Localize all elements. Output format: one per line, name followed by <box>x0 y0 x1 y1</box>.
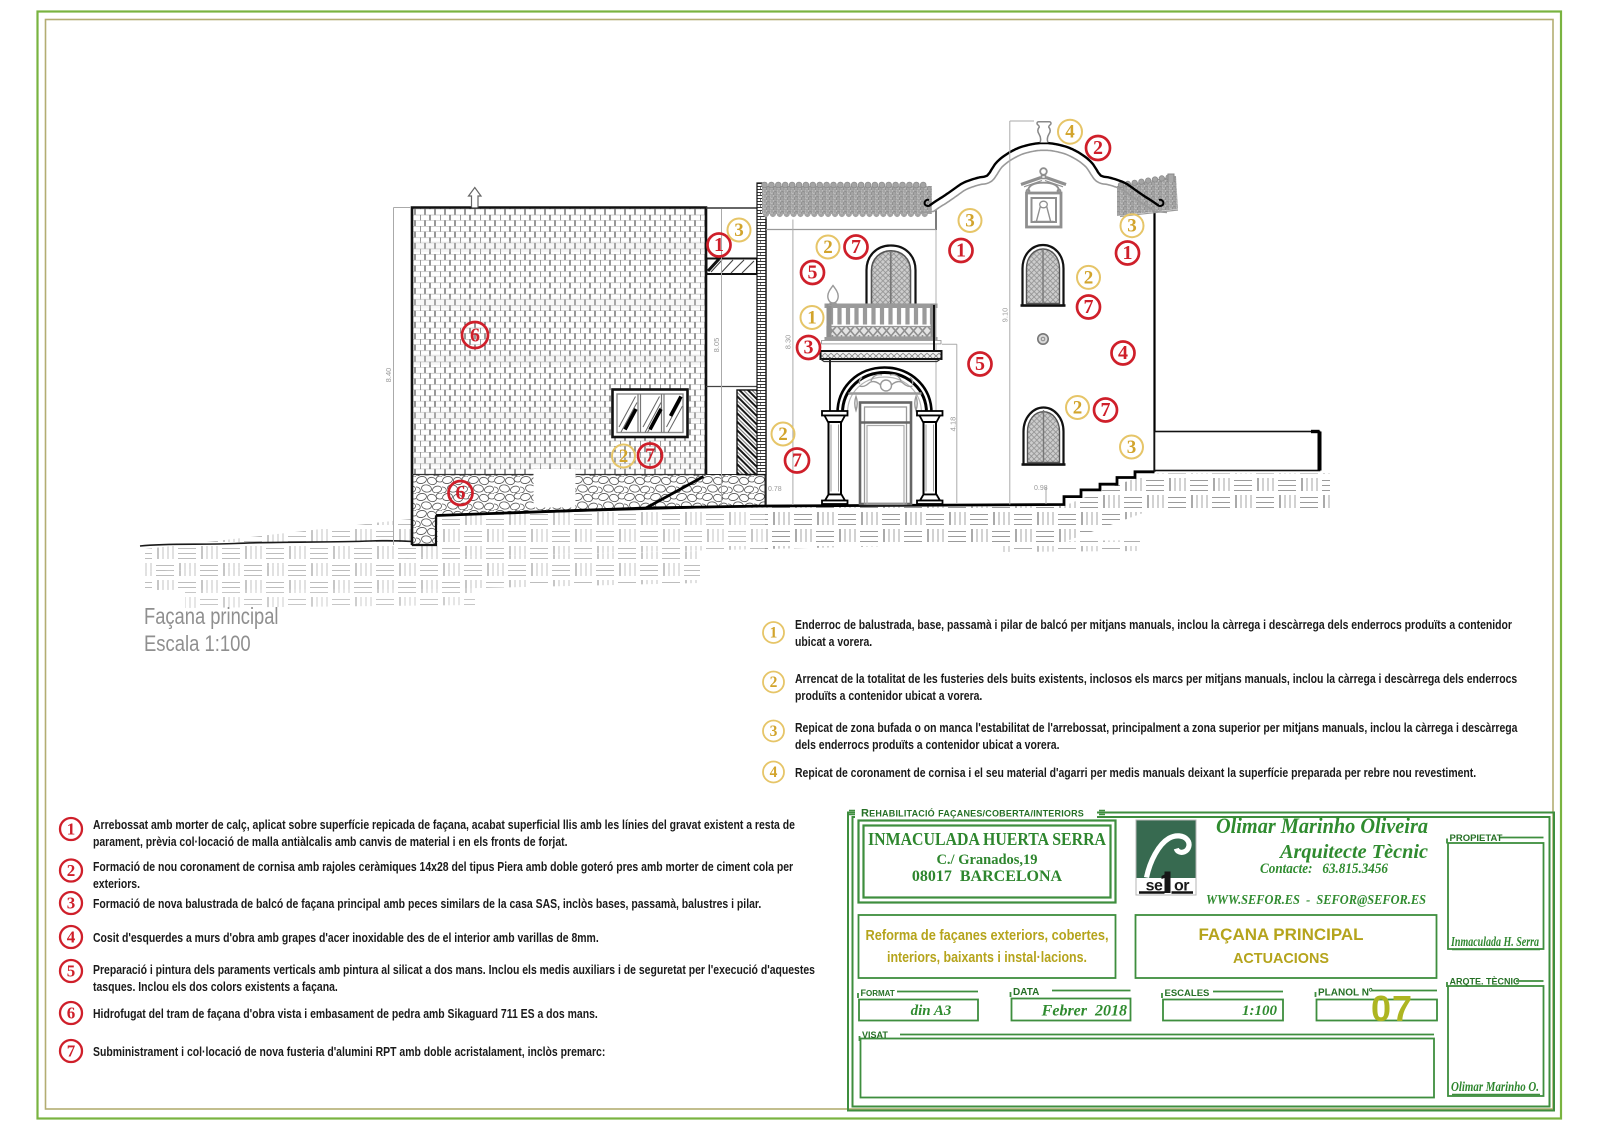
svg-text:WWW.SEFOR.ES - SEFOR@SEFOR.E: WWW.SEFOR.ES - SEFOR@SEFOR.ES <box>1206 892 1426 907</box>
svg-text:FORMAT: FORMAT <box>861 988 895 998</box>
svg-text:ESCALES: ESCALES <box>1165 988 1210 999</box>
svg-text:PROPIETAT: PROPIETAT <box>1450 833 1503 844</box>
svg-text:interiors, baixants i instal·l: interiors, baixants i instal·lacions. <box>887 950 1087 966</box>
svg-text:Reforma de façanes exteriors,: Reforma de façanes exteriors, cobertes, <box>866 928 1109 944</box>
svg-text:4.18: 4.18 <box>948 417 957 432</box>
svg-text:INMACULADA HUERTA SERRA: INMACULADA HUERTA SERRA <box>868 829 1106 849</box>
svg-text:1: 1 <box>714 234 724 256</box>
svg-text:ARQTE. TÈCNIC: ARQTE. TÈCNIC <box>1450 977 1521 987</box>
svg-text:3: 3 <box>734 220 744 241</box>
svg-text:DATA: DATA <box>1013 987 1039 998</box>
svg-text:4: 4 <box>1118 342 1128 364</box>
svg-text:5: 5 <box>808 262 818 284</box>
svg-text:2: 2 <box>823 237 833 258</box>
svg-text:08017 BARCELONA: 08017 BARCELONA <box>912 868 1063 885</box>
svg-text:5: 5 <box>67 962 76 981</box>
svg-text:0.98: 0.98 <box>1034 485 1048 492</box>
svg-text:3: 3 <box>67 894 76 913</box>
svg-text:3: 3 <box>965 211 975 232</box>
svg-text:VISAT: VISAT <box>862 1030 888 1040</box>
svg-text:8.30: 8.30 <box>783 335 792 350</box>
svg-text:2: 2 <box>1093 137 1103 159</box>
svg-text:C./ Granados,19: C./ Granados,19 <box>936 852 1037 868</box>
svg-text:5: 5 <box>975 353 985 375</box>
svg-text:7: 7 <box>1101 399 1111 421</box>
svg-text:2: 2 <box>1073 398 1083 419</box>
svg-text:6: 6 <box>470 325 480 347</box>
svg-text:1:100: 1:100 <box>1242 1003 1277 1019</box>
svg-text:3: 3 <box>1127 437 1137 458</box>
svg-text:PLANOL Nº: PLANOL Nº <box>1318 988 1373 999</box>
svg-text:Contacte: 63.815.3456: Contacte: 63.815.3456 <box>1260 861 1389 877</box>
svg-text:Inmaculada H. Serra: Inmaculada H. Serra <box>1450 934 1539 949</box>
svg-text:1: 1 <box>956 240 966 262</box>
svg-text:1: 1 <box>770 625 778 642</box>
svg-text:Arquitecte Tècnic: Arquitecte Tècnic <box>1278 841 1428 863</box>
svg-text:7: 7 <box>792 450 802 472</box>
svg-text:7: 7 <box>67 1042 76 1061</box>
svg-text:6: 6 <box>456 482 466 504</box>
svg-text:0.78: 0.78 <box>768 486 782 493</box>
svg-text:REHABILITACIÓ FAÇANES/COBERTA/: REHABILITACIÓ FAÇANES/COBERTA/INTERIORS <box>861 808 1084 820</box>
svg-text:6: 6 <box>67 1004 76 1023</box>
svg-text:4: 4 <box>770 764 778 781</box>
svg-text:din A3: din A3 <box>911 1003 952 1019</box>
svg-text:2: 2 <box>67 861 76 880</box>
svg-text:FAÇANA PRINCIPAL: FAÇANA PRINCIPAL <box>1199 925 1364 944</box>
svg-text:2: 2 <box>778 424 788 445</box>
svg-text:1: 1 <box>67 820 76 839</box>
svg-text:8.05: 8.05 <box>712 338 721 353</box>
svg-text:8.40: 8.40 <box>384 368 393 383</box>
svg-text:7: 7 <box>851 236 861 258</box>
svg-text:Febrer 2018: Febrer 2018 <box>1041 1003 1127 1020</box>
svg-text:1: 1 <box>1123 242 1133 264</box>
svg-text:2: 2 <box>619 446 629 467</box>
svg-text:3: 3 <box>770 723 778 740</box>
svg-text:7: 7 <box>645 445 655 467</box>
svg-text:1: 1 <box>807 308 817 329</box>
svg-text:Olimar Marinho O.: Olimar Marinho O. <box>1451 1079 1539 1094</box>
svg-text:3: 3 <box>1127 216 1137 237</box>
svg-text:4: 4 <box>67 928 76 947</box>
svg-text:ACTUACIONS: ACTUACIONS <box>1233 950 1329 967</box>
svg-text:2: 2 <box>770 674 778 691</box>
svg-text:9.10: 9.10 <box>1000 308 1009 323</box>
svg-text:7: 7 <box>1084 296 1094 318</box>
svg-text:07: 07 <box>1371 988 1413 1029</box>
svg-text:Olimar Marinho Oliveira: Olimar Marinho Oliveira <box>1216 813 1428 838</box>
svg-text:2: 2 <box>1084 267 1094 288</box>
svg-text:3: 3 <box>804 337 814 359</box>
svg-text:4: 4 <box>1065 122 1075 143</box>
